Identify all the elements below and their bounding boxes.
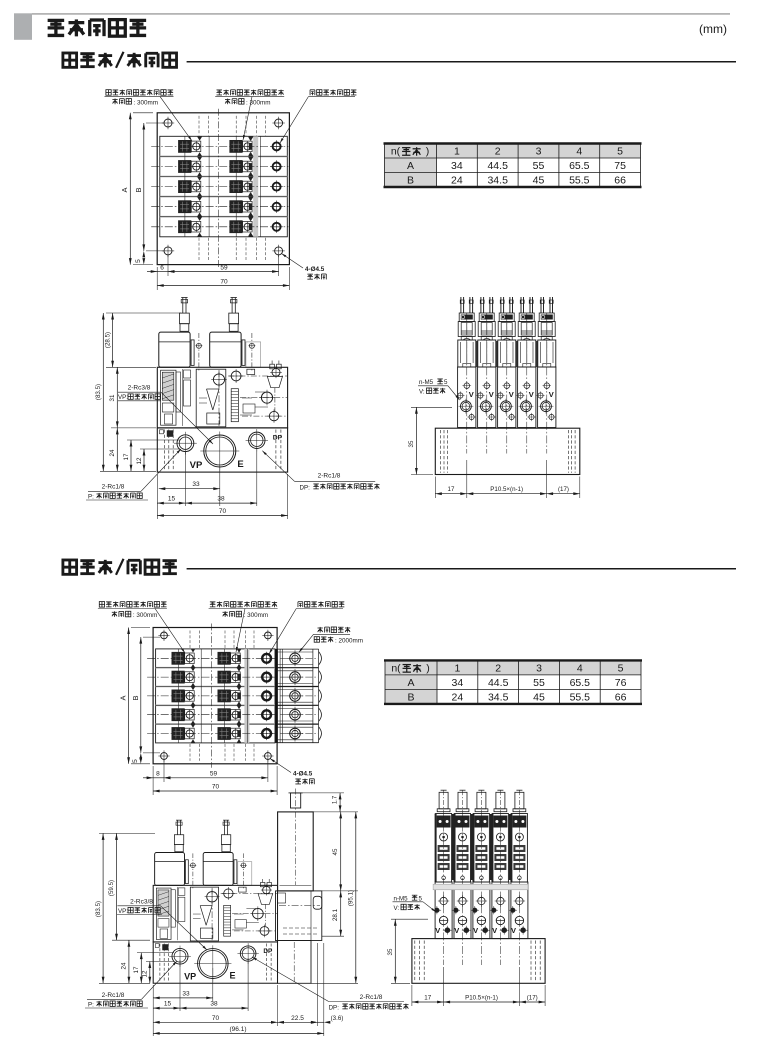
svg-text:V: V: [511, 926, 516, 935]
svg-text:n(: n(: [391, 146, 401, 158]
svg-text:n-M5: n-M5: [419, 379, 434, 386]
svg-text:VP: VP: [184, 971, 196, 981]
svg-text:5: 5: [419, 895, 423, 902]
svg-text:P:: P:: [88, 494, 94, 501]
svg-text:A: A: [118, 695, 127, 700]
svg-text:DP:: DP:: [300, 485, 311, 492]
svg-text:n(: n(: [391, 662, 401, 674]
svg-text:70: 70: [220, 278, 228, 285]
svg-text:70: 70: [219, 508, 227, 515]
svg-text:DP: DP: [273, 435, 283, 442]
svg-text:2-Rc1/8: 2-Rc1/8: [102, 992, 125, 999]
svg-text:35: 35: [408, 440, 415, 447]
svg-text:B: B: [134, 187, 143, 192]
svg-text:28.1: 28.1: [332, 908, 339, 921]
svg-text:66: 66: [615, 691, 627, 703]
svg-text:3: 3: [536, 662, 542, 674]
svg-text:VP:: VP:: [118, 908, 128, 915]
svg-text:V: V: [529, 390, 534, 399]
svg-text:24: 24: [451, 175, 463, 187]
svg-text:76: 76: [615, 677, 627, 689]
svg-text:31: 31: [109, 394, 116, 401]
svg-text:8: 8: [156, 771, 160, 778]
svg-text:70: 70: [212, 1015, 220, 1022]
svg-text:VP: VP: [190, 460, 203, 471]
svg-text:1: 1: [454, 662, 460, 674]
svg-text:12: 12: [142, 970, 149, 977]
svg-text:2-Rc3/8: 2-Rc3/8: [130, 899, 153, 906]
svg-text:15: 15: [168, 496, 176, 503]
svg-text:: 300mm: : 300mm: [244, 612, 269, 619]
svg-text:B: B: [407, 691, 414, 703]
svg-text:24: 24: [109, 449, 116, 456]
svg-text:DP:: DP:: [329, 1005, 340, 1012]
svg-text:V: V: [509, 390, 514, 399]
svg-text:45: 45: [533, 175, 545, 187]
svg-text:2: 2: [495, 662, 501, 674]
svg-text:A: A: [120, 187, 129, 192]
svg-text:(17): (17): [527, 994, 538, 1001]
svg-text:38: 38: [217, 496, 225, 503]
svg-text:45: 45: [332, 848, 339, 855]
svg-text:: 300mm: : 300mm: [246, 99, 271, 106]
svg-text:A: A: [407, 160, 414, 172]
svg-text:17: 17: [123, 453, 130, 460]
svg-text:(mm): (mm): [699, 22, 727, 36]
svg-text:n-M5: n-M5: [394, 895, 409, 902]
svg-text:4: 4: [577, 662, 583, 674]
svg-text:VP:: VP:: [118, 394, 128, 401]
svg-text:2-Rc1/8: 2-Rc1/8: [360, 994, 383, 1001]
svg-text:E: E: [230, 971, 236, 981]
svg-text:55.5: 55.5: [569, 175, 590, 187]
svg-text:70: 70: [212, 784, 220, 791]
svg-text:B: B: [131, 695, 140, 700]
svg-text:DP: DP: [263, 948, 273, 955]
svg-text:34.5: 34.5: [487, 175, 508, 187]
svg-text:17: 17: [424, 994, 431, 1001]
svg-text:V:: V:: [419, 389, 425, 396]
svg-text:(28.5): (28.5): [105, 332, 112, 348]
svg-text:5: 5: [617, 146, 623, 158]
svg-text:(3.6): (3.6): [331, 1015, 344, 1022]
svg-text:(96.1): (96.1): [230, 1026, 247, 1033]
svg-text:4-Ø4.5: 4-Ø4.5: [305, 266, 325, 273]
svg-text:P:: P:: [88, 1001, 94, 1008]
svg-text:44.5: 44.5: [488, 677, 509, 689]
svg-text:34.5: 34.5: [488, 691, 509, 703]
svg-text:33: 33: [182, 990, 190, 997]
svg-text:V: V: [549, 390, 554, 399]
svg-text:59: 59: [210, 771, 218, 778]
svg-text:1: 1: [454, 146, 460, 158]
svg-text:): ): [426, 146, 430, 158]
svg-text:45: 45: [533, 691, 545, 703]
svg-text:B: B: [407, 175, 414, 187]
svg-text:12: 12: [136, 457, 143, 464]
svg-text:1.7: 1.7: [333, 795, 339, 804]
svg-text:55: 55: [533, 677, 545, 689]
svg-text:2-Rc1/8: 2-Rc1/8: [318, 473, 341, 480]
svg-text:22.5: 22.5: [291, 1015, 304, 1022]
svg-text:E: E: [237, 459, 243, 470]
svg-text:6: 6: [160, 264, 164, 271]
svg-text:66: 66: [614, 175, 626, 187]
svg-text:(59.5): (59.5): [108, 880, 115, 896]
svg-text:5: 5: [135, 259, 142, 263]
svg-text:65.5: 65.5: [570, 677, 591, 689]
svg-text:4-Ø4.5: 4-Ø4.5: [293, 771, 313, 778]
svg-text:24: 24: [121, 962, 128, 969]
svg-text:: 300mm: : 300mm: [134, 99, 159, 106]
svg-text:(17): (17): [558, 486, 569, 493]
svg-text:55.5: 55.5: [570, 691, 591, 703]
svg-text:34: 34: [452, 677, 464, 689]
svg-text:44.5: 44.5: [487, 160, 508, 172]
svg-text:24: 24: [452, 691, 464, 703]
svg-text:65.5: 65.5: [569, 160, 590, 172]
svg-text:38: 38: [210, 1001, 218, 1008]
svg-text:75: 75: [614, 160, 626, 172]
svg-text:V: V: [492, 926, 497, 935]
svg-text:(83.5): (83.5): [95, 901, 102, 917]
svg-text:55: 55: [533, 160, 545, 172]
svg-text:: 300mm: : 300mm: [133, 612, 158, 619]
svg-text:A: A: [407, 677, 414, 689]
svg-text:(83.5): (83.5): [95, 384, 102, 400]
svg-text:P10.5×(n-1): P10.5×(n-1): [490, 486, 523, 493]
svg-text:V: V: [454, 926, 459, 935]
svg-text:34: 34: [451, 160, 463, 172]
svg-text:(95.1): (95.1): [347, 890, 354, 906]
svg-text:3: 3: [536, 146, 542, 158]
svg-text:V: V: [469, 390, 474, 399]
svg-text:2: 2: [495, 146, 501, 158]
svg-text:V: V: [435, 926, 440, 935]
svg-text:17: 17: [133, 966, 140, 973]
svg-text:15: 15: [164, 1001, 172, 1008]
svg-text:: 2000mm: : 2000mm: [335, 637, 363, 644]
svg-text:33: 33: [192, 481, 200, 488]
svg-text:2-Rc1/8: 2-Rc1/8: [102, 484, 125, 491]
svg-text:): ): [426, 662, 430, 674]
svg-text:V: V: [473, 926, 478, 935]
svg-text:5: 5: [132, 759, 139, 763]
svg-text:4: 4: [576, 146, 582, 158]
svg-text:V:: V:: [394, 905, 400, 912]
svg-text:V: V: [489, 390, 494, 399]
svg-text:59: 59: [220, 264, 228, 271]
svg-text:P10.5×(n-1): P10.5×(n-1): [465, 994, 498, 1001]
svg-text:2-Rc3/8: 2-Rc3/8: [128, 385, 151, 392]
svg-text:17: 17: [448, 486, 455, 493]
svg-text:35: 35: [387, 948, 394, 955]
svg-text:5: 5: [618, 662, 624, 674]
svg-text:5: 5: [444, 379, 448, 386]
